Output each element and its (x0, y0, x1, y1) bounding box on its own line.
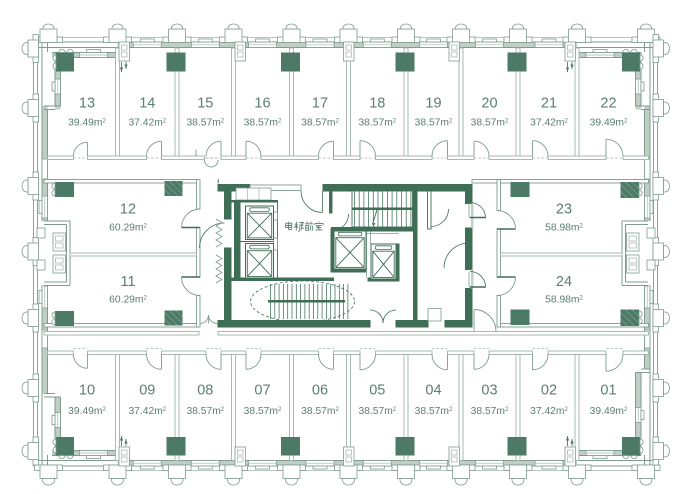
svg-text:02: 02 (541, 383, 557, 399)
svg-text:10: 10 (79, 383, 95, 399)
svg-text:60.29m2: 60.29m2 (109, 295, 147, 306)
svg-text:18: 18 (369, 96, 385, 112)
svg-text:01: 01 (600, 383, 616, 399)
svg-text:37.42m2: 37.42m2 (530, 406, 568, 417)
svg-text:39.49m2: 39.49m2 (68, 118, 106, 129)
svg-text:38.57m2: 38.57m2 (415, 406, 453, 417)
svg-text:37.42m2: 37.42m2 (128, 118, 166, 129)
svg-text:37.42m2: 37.42m2 (128, 406, 166, 417)
svg-text:22: 22 (600, 96, 616, 112)
svg-text:21: 21 (541, 96, 557, 112)
svg-text:38.57m2: 38.57m2 (186, 406, 224, 417)
svg-text:38.57m2: 38.57m2 (358, 118, 396, 129)
svg-text:14: 14 (139, 96, 155, 112)
svg-text:23: 23 (556, 202, 572, 218)
svg-text:38.57m2: 38.57m2 (244, 406, 282, 417)
svg-text:38.57m2: 38.57m2 (358, 406, 396, 417)
svg-text:38.57m2: 38.57m2 (471, 406, 509, 417)
svg-text:05: 05 (369, 383, 385, 399)
svg-text:03: 03 (481, 383, 497, 399)
svg-text:58.98m2: 58.98m2 (545, 223, 583, 234)
svg-text:38.57m2: 38.57m2 (415, 118, 453, 129)
svg-text:38.57m2: 38.57m2 (186, 118, 224, 129)
svg-text:24: 24 (556, 274, 572, 290)
svg-text:06: 06 (312, 383, 328, 399)
svg-text:37.42m2: 37.42m2 (530, 118, 568, 129)
svg-text:17: 17 (312, 96, 328, 112)
svg-text:09: 09 (139, 383, 155, 399)
svg-text:39.49m2: 39.49m2 (590, 406, 628, 417)
svg-text:08: 08 (197, 383, 213, 399)
svg-text:15: 15 (197, 96, 213, 112)
svg-text:58.98m2: 58.98m2 (545, 295, 583, 306)
svg-text:20: 20 (481, 96, 497, 112)
svg-text:38.57m2: 38.57m2 (471, 118, 509, 129)
svg-text:38.57m2: 38.57m2 (301, 406, 339, 417)
svg-text:38.57m2: 38.57m2 (301, 118, 339, 129)
svg-text:16: 16 (254, 96, 270, 112)
svg-text:39.49m2: 39.49m2 (590, 118, 628, 129)
svg-text:19: 19 (425, 96, 441, 112)
svg-text:38.57m2: 38.57m2 (244, 118, 282, 129)
svg-text:12: 12 (120, 202, 136, 218)
svg-text:13: 13 (79, 96, 95, 112)
svg-text:04: 04 (425, 383, 441, 399)
svg-text:11: 11 (120, 274, 135, 290)
svg-text:39.49m2: 39.49m2 (68, 406, 106, 417)
svg-text:60.29m2: 60.29m2 (109, 223, 147, 234)
svg-text:07: 07 (254, 383, 270, 399)
